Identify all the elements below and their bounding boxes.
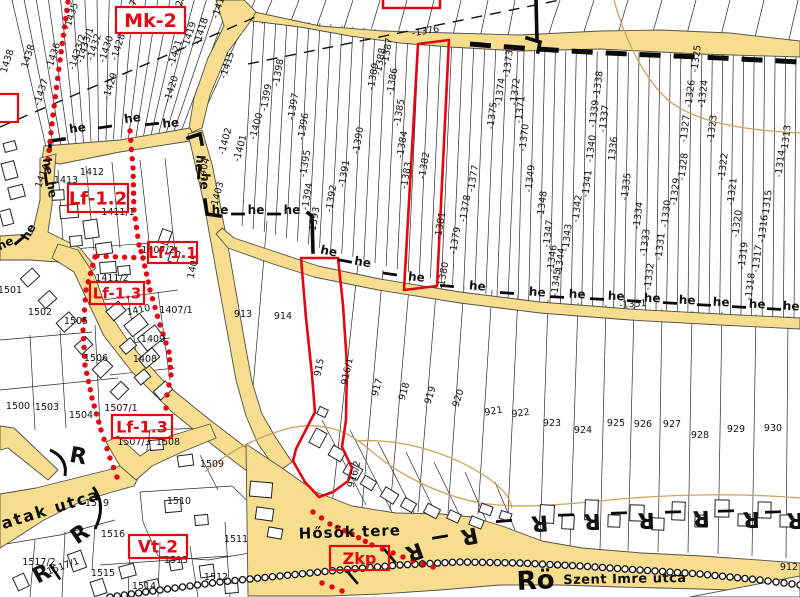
- red-dot: [152, 305, 157, 310]
- he-dash: [145, 123, 159, 124]
- he-symbol: he: [783, 299, 800, 314]
- he-symbol: he: [407, 269, 425, 285]
- red-dot: [400, 554, 405, 559]
- map-canvas: hehehehehehehehehehehehehehehehehehehehe…: [0, 0, 800, 597]
- chain-circle: [277, 573, 283, 579]
- building: [195, 514, 209, 525]
- red-dot: [55, 76, 60, 81]
- chain-circle: [157, 587, 163, 593]
- chain-circle: [239, 577, 245, 583]
- parcel-number: 926: [634, 419, 652, 430]
- parcel-number: -1351: [619, 298, 647, 311]
- chain-circle: [569, 563, 575, 569]
- parcel-number: 1412: [80, 167, 104, 178]
- building: [70, 235, 83, 246]
- parcel-number: 1506: [84, 353, 108, 364]
- parcel-number: 1501: [0, 285, 22, 296]
- chain-circle: [757, 577, 763, 583]
- chain-circle: [284, 572, 290, 578]
- building: [100, 261, 117, 273]
- chain-circle: [307, 570, 313, 576]
- building: [249, 481, 272, 498]
- red-dot: [164, 392, 169, 397]
- parcel-number: 912: [780, 562, 798, 573]
- red-dot: [49, 121, 54, 126]
- red-dot: [430, 564, 435, 569]
- parcel-number: 1515: [91, 568, 115, 579]
- he-symbol: he: [162, 115, 180, 130]
- red-dot: [90, 263, 95, 268]
- red-dot: [83, 297, 88, 302]
- parcel-number: 1408: [133, 354, 157, 365]
- chain-circle: [187, 583, 193, 589]
- chain-circle: [494, 560, 500, 566]
- red-dot: [82, 307, 87, 312]
- he-dash: [732, 307, 746, 308]
- red-dot: [127, 128, 132, 133]
- red-dot: [107, 455, 112, 460]
- zone-label: Lf-1.3: [93, 284, 142, 302]
- red-dot: [98, 427, 103, 432]
- zone-label: Zkp: [343, 549, 377, 568]
- chain-circle: [322, 568, 328, 574]
- parcel-number: 1510: [167, 496, 191, 507]
- chain-circle: [114, 593, 120, 597]
- chain-circle: [689, 570, 695, 576]
- chain-circle: [487, 559, 493, 565]
- red-dot: [319, 580, 324, 585]
- chain-circle: [697, 571, 703, 577]
- he-symbol: he: [468, 278, 486, 293]
- chain-circle: [464, 559, 470, 565]
- parcel-number: 930: [764, 423, 782, 434]
- chain-circle: [704, 572, 710, 578]
- zone-label: Lf-1.3: [116, 417, 168, 436]
- red-dot: [131, 199, 136, 204]
- building: [715, 500, 729, 517]
- chain-circle: [734, 575, 740, 581]
- red-dot: [122, 255, 127, 260]
- parcel-number: 913: [234, 309, 252, 320]
- parcel-number: 1409: [141, 334, 165, 345]
- red-dot: [104, 446, 109, 451]
- parcel-number: 1511: [224, 534, 248, 545]
- he-symbol: he: [284, 203, 301, 217]
- chain-circle: [164, 586, 170, 592]
- red-dot: [146, 279, 151, 284]
- parcel-number: 929: [727, 424, 745, 435]
- red-dot: [84, 371, 89, 376]
- red-dot: [48, 130, 53, 135]
- r-dash: [665, 512, 681, 513]
- red-dot: [114, 474, 119, 479]
- r-symbol: R: [583, 508, 601, 534]
- red-dot: [135, 234, 140, 239]
- chain-circle: [742, 575, 748, 581]
- red-dot: [163, 405, 168, 410]
- chain-circle: [584, 563, 590, 569]
- he-symbol: he: [248, 203, 265, 217]
- red-dot: [56, 66, 61, 71]
- red-dot: [157, 322, 162, 327]
- r-dash: [718, 511, 734, 512]
- parcel-number: 1509: [200, 459, 224, 470]
- chain-circle: [749, 576, 755, 582]
- building: [267, 527, 283, 539]
- he-symbol: he: [713, 295, 730, 310]
- red-dot: [101, 437, 106, 442]
- chain-circle: [382, 563, 388, 569]
- he-dash: [500, 293, 514, 294]
- red-dot: [147, 287, 152, 292]
- red-dot: [168, 365, 173, 370]
- chain-circle: [607, 565, 613, 571]
- red-dot: [131, 174, 136, 179]
- red-dot: [94, 411, 99, 416]
- street-label: Szent Imre utca: [563, 571, 687, 588]
- parcel-number: 928: [691, 430, 709, 441]
- chain-circle: [442, 560, 448, 566]
- red-dot: [329, 584, 334, 589]
- red-dot: [130, 156, 135, 161]
- chain-circle: [314, 569, 320, 575]
- chain-circle: [719, 573, 725, 579]
- red-dot: [166, 382, 171, 387]
- parcel-number: 1512: [204, 572, 228, 583]
- parcel-number: 924: [574, 425, 592, 436]
- red-dot: [81, 336, 86, 341]
- chain-circle: [727, 574, 733, 580]
- chain-circle: [269, 574, 275, 580]
- chain-circle: [577, 563, 583, 569]
- building: [95, 242, 112, 255]
- he-dash: [98, 126, 112, 128]
- r-symbol: R: [742, 506, 760, 532]
- chain-circle: [765, 578, 771, 584]
- red-dot: [88, 387, 93, 392]
- red-dot: [131, 182, 136, 187]
- he-dash: [590, 299, 604, 300]
- he-dash: [663, 303, 677, 304]
- red-dot: [54, 85, 59, 90]
- red-dot: [80, 327, 85, 332]
- chain-circle: [254, 575, 260, 581]
- red-dot: [130, 165, 135, 170]
- red-dot: [92, 403, 97, 408]
- chain-circle: [172, 585, 178, 591]
- he-symbol: he: [353, 254, 372, 271]
- chain-circle: [517, 560, 523, 566]
- building: [608, 515, 620, 527]
- chain-circle: [599, 564, 605, 570]
- building: [177, 454, 193, 467]
- red-dot: [50, 112, 55, 117]
- he-dash: [383, 273, 397, 275]
- chain-circle: [712, 572, 718, 578]
- r-symbol: R: [786, 507, 800, 533]
- red-dot: [150, 296, 155, 301]
- red-dot: [128, 138, 133, 143]
- chain-circle: [773, 579, 779, 585]
- red-dot: [339, 588, 344, 593]
- chain-circle: [502, 560, 508, 566]
- he-symbol: he: [679, 293, 696, 308]
- parcel-number: 1503: [35, 402, 59, 413]
- red-dot: [81, 345, 86, 350]
- building: [83, 219, 99, 239]
- chain-circle: [292, 571, 298, 577]
- chain-circle: [449, 559, 455, 565]
- he-dash: [697, 305, 711, 306]
- red-dot: [61, 32, 66, 37]
- red-dot: [96, 419, 101, 424]
- chain-circle: [247, 576, 253, 582]
- he-symbol: he: [528, 284, 546, 299]
- parcel-number: 1514: [132, 581, 156, 592]
- red-dot: [89, 395, 94, 400]
- parcel-number: 1504: [69, 410, 93, 421]
- he-symbol: he: [123, 110, 141, 126]
- red-dot: [310, 509, 315, 514]
- red-dot: [319, 515, 324, 520]
- chain-circle: [299, 571, 305, 577]
- r-dash: [765, 512, 781, 513]
- chain-circle: [397, 562, 403, 568]
- parcel-number: 1516: [101, 529, 125, 540]
- chain-circle: [554, 562, 560, 568]
- red-dot: [134, 225, 139, 230]
- chain-circle: [232, 577, 238, 583]
- red-dot: [144, 271, 149, 276]
- chain-circle: [179, 584, 185, 590]
- chain-circle: [121, 592, 127, 597]
- zone-label: Lf-1.1: [148, 244, 197, 262]
- chain-circle: [262, 574, 268, 580]
- parcel-number: 927: [663, 419, 681, 430]
- parcel-number: 1500: [6, 401, 30, 412]
- corner-mark: [536, 0, 537, 40]
- r-symbol: R: [637, 507, 655, 533]
- chain-circle: [479, 559, 485, 565]
- red-dot: [83, 287, 88, 292]
- street-label: Hősök tere: [298, 521, 401, 543]
- red-dot: [46, 148, 51, 153]
- chain-circle: [434, 560, 440, 566]
- chain-circle: [509, 560, 515, 566]
- red-dot: [47, 139, 52, 144]
- parcel-number: 923: [543, 418, 561, 429]
- r-dash: [558, 515, 574, 516]
- red-dot: [129, 147, 134, 152]
- r-symbol: R: [692, 505, 710, 531]
- zone-label: Vt-2: [138, 538, 178, 558]
- parcel-number: 925: [607, 418, 625, 429]
- cadastral-map: hehehehehehehehehehehehehehehehehehehehe…: [0, 0, 800, 597]
- red-dot: [131, 255, 136, 260]
- red-dot: [142, 263, 147, 268]
- red-dot: [104, 254, 109, 259]
- chain-circle: [457, 559, 463, 565]
- street-label: Rö: [516, 565, 555, 597]
- red-dot: [51, 103, 56, 108]
- red-dot: [113, 254, 118, 259]
- he-symbol: he: [569, 287, 586, 302]
- zone-label: Mk-2: [124, 10, 177, 32]
- chain-circle: [789, 581, 795, 587]
- red-dot: [168, 372, 173, 377]
- chain-circle: [614, 565, 620, 571]
- chain-circle: [194, 582, 200, 588]
- chain-circle: [562, 562, 568, 568]
- zone-label: Lf-1.2: [69, 188, 127, 209]
- red-dot: [140, 255, 145, 260]
- building: [562, 515, 575, 530]
- red-dot: [166, 349, 171, 354]
- chain-circle: [472, 559, 478, 565]
- parcel-number: 1505: [64, 316, 88, 327]
- building: [255, 507, 274, 521]
- parcel-number: 1502: [28, 307, 52, 318]
- r-dash: [611, 513, 627, 514]
- red-dot: [131, 191, 136, 196]
- r-symbol: R: [530, 509, 549, 535]
- red-dot: [86, 379, 91, 384]
- red-dot: [92, 254, 97, 259]
- chain-circle: [592, 564, 598, 570]
- red-dot: [111, 465, 116, 470]
- red-dot: [390, 550, 395, 555]
- parcel-number: 1507/1: [104, 403, 137, 414]
- parcel-number: 914: [274, 311, 292, 322]
- red-dot: [167, 357, 172, 362]
- red-dot: [88, 271, 93, 276]
- he-dash: [767, 309, 781, 310]
- r-dash: [496, 520, 512, 521]
- chain-circle: [781, 580, 787, 586]
- he-symbol: he: [68, 120, 86, 136]
- parcel-number: 1407/1: [159, 305, 192, 316]
- red-dot: [53, 94, 58, 99]
